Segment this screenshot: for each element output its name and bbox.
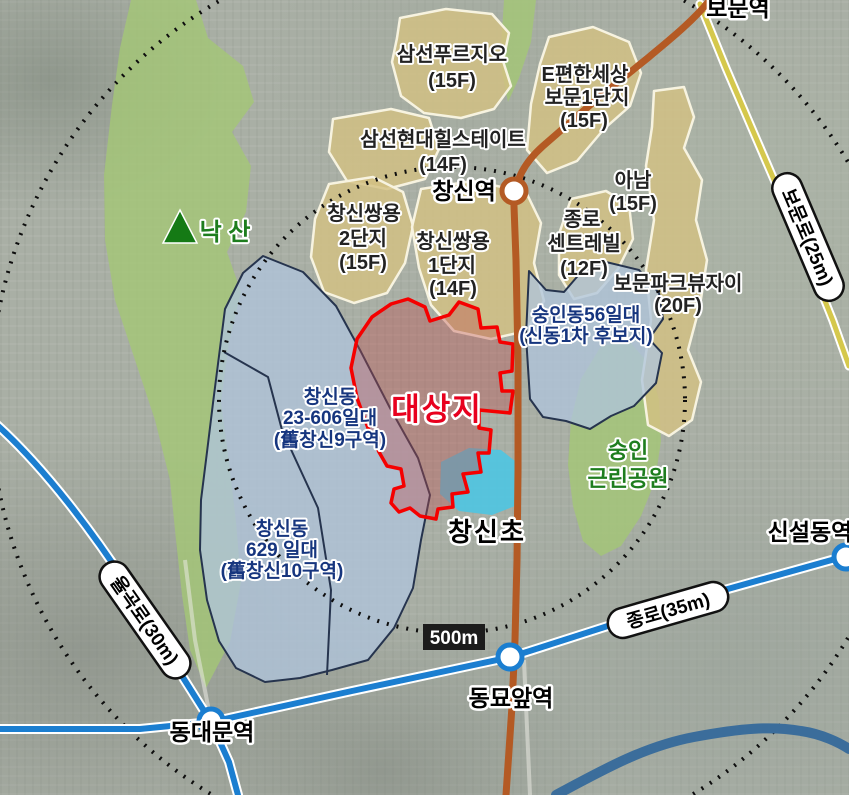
minor-street	[524, 660, 530, 795]
apt-label-ssangyong1-danji: 1단지	[428, 254, 476, 277]
apt-label-anam: 아남	[615, 169, 652, 192]
mountain-label: 낙 산	[200, 219, 251, 246]
apt-label-ssangyong2-floors: (15F)	[339, 252, 387, 274]
apt-label-ssangyong1-floors: (14F)	[429, 278, 477, 300]
apt-label-jongro: 종로	[564, 209, 601, 231]
park-label-line1: 숭인	[608, 438, 648, 463]
stream-cheonggyecheon	[556, 728, 849, 795]
station-dongmyo-marker	[498, 645, 522, 669]
apt-label-centreville-floors: (12F)	[560, 258, 608, 280]
road-label-jongro: 종로(35m)	[604, 578, 731, 641]
scale-label: 500m	[430, 628, 479, 649]
apt-label-bomun-parkview-floors: (20F)	[654, 295, 702, 317]
station-label-dongdaemun: 동대문역	[170, 719, 255, 745]
zone-label-changsin9-lot: 23-606일대	[283, 407, 377, 429]
zone-label-changsin10-old: (舊창신10구역)	[221, 560, 344, 582]
station-label-sinseoldong: 신설동역	[768, 519, 849, 545]
zone-label-sungindong56: 숭인동56일대	[532, 304, 641, 326]
station-label-changsin: 창신역	[432, 178, 495, 204]
satellite-map: 보문로(25m) 종로(35m) 율곡로(30m) 500m 삼선푸르지오 (1…	[0, 0, 849, 795]
apt-label-ssangyong2-danji: 2단지	[339, 227, 387, 250]
apt-label-samseon-prugio: 삼선푸르지오	[397, 43, 507, 66]
station-sinseoldong-marker	[834, 545, 849, 569]
target-site-label: 대상지	[391, 392, 483, 427]
zone-label-changsin9: 창신동	[304, 386, 356, 408]
apt-label-samseon-hyundai: 삼선현대힐스테이트	[360, 127, 526, 151]
zone-label-sungindong56-note: (신동1차 후보지)	[519, 325, 652, 347]
apt-label-samseon-prugio-floors: (15F)	[428, 70, 476, 92]
station-label-bomun: 보문역	[706, 0, 769, 21]
scale-indicator: 500m	[423, 624, 485, 650]
road-label-bomunro: 보문로(25m)	[768, 169, 849, 306]
yulgokro-label: 율곡로(30m)	[106, 572, 183, 669]
apt-label-epyeonhansesang: E편한세상	[542, 63, 630, 86]
apt-label-samseon-hyundai-floors: (14F)	[419, 154, 467, 176]
zone-label-changsin9-old: (舊창신9구역)	[274, 429, 386, 451]
apt-label-centreville: 센트레빌	[547, 232, 621, 255]
apt-label-bomun1danji: 보문1단지	[545, 86, 630, 109]
zone-label-changsin10-lot: 629 일대	[246, 539, 318, 561]
map-overlay: 보문로(25m) 종로(35m) 율곡로(30m) 500m 삼선푸르지오 (1…	[0, 0, 849, 795]
zone-label-changsin10: 창신동	[256, 518, 308, 540]
apt-label-bomun-parkview: 보문파크뷰자이	[614, 272, 743, 295]
apt-label-anam-floors: (15F)	[609, 193, 657, 215]
school-label: 창신초	[448, 517, 526, 547]
station-label-dongmyo: 동묘앞역	[469, 685, 554, 711]
park-label-line2: 근린공원	[588, 466, 669, 491]
apt-label-ssangyong1: 창신쌍용	[416, 230, 490, 253]
apt-label-bomun1danji-floors: (15F)	[560, 110, 608, 132]
station-changsin-marker	[502, 179, 526, 203]
apt-label-ssangyong2: 창신쌍용	[327, 202, 401, 225]
